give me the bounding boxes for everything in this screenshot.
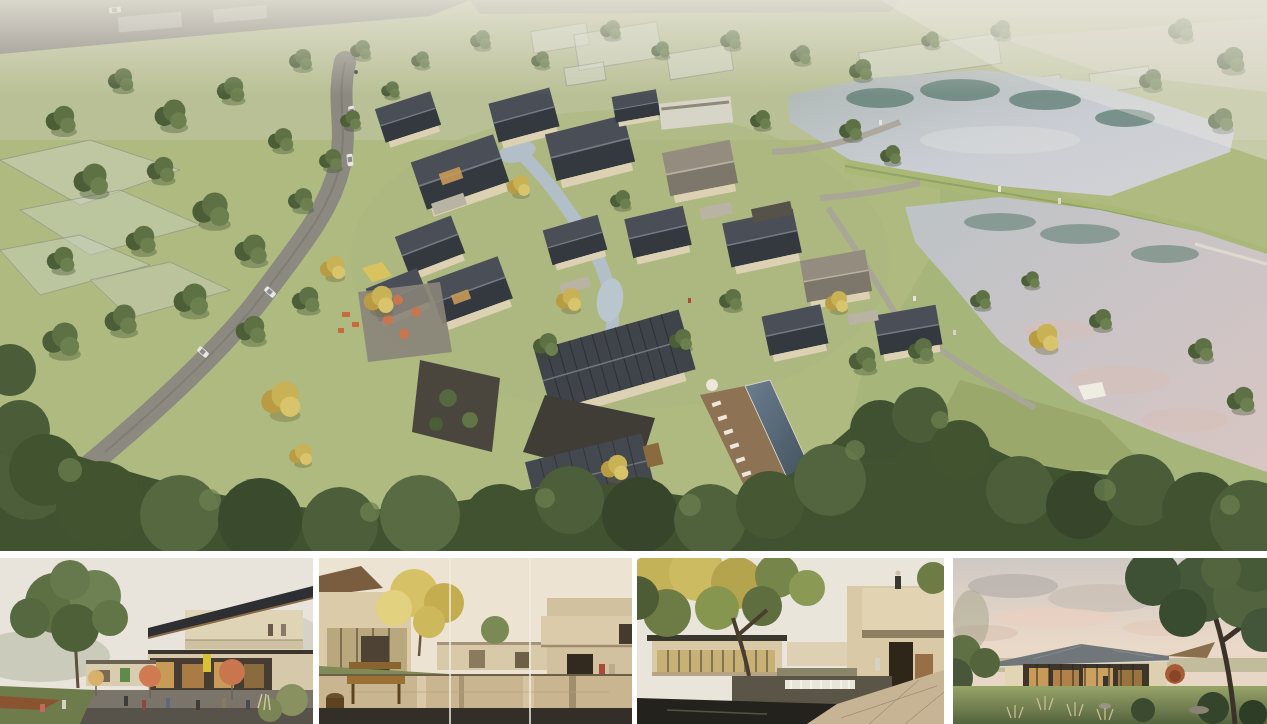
thumb4-scene xyxy=(953,558,1267,724)
thumb-courtyard-pond xyxy=(319,558,632,724)
thumbnail-row xyxy=(0,558,1267,724)
thumb2-scene xyxy=(319,558,632,724)
thumb3-scene xyxy=(637,558,944,724)
thumb1-scene xyxy=(0,558,313,724)
render-board xyxy=(0,0,1267,724)
thumb-cafe-street xyxy=(0,558,313,724)
thumb-dusk-pavilion xyxy=(953,558,1267,724)
distant-court xyxy=(787,642,857,666)
foreground-floor xyxy=(319,708,632,724)
left-pavilion xyxy=(647,635,787,676)
aerial-scene xyxy=(0,0,1267,551)
thumb-water-court xyxy=(637,558,944,724)
pool-umbrella xyxy=(706,379,718,391)
aerial-render xyxy=(0,0,1267,551)
